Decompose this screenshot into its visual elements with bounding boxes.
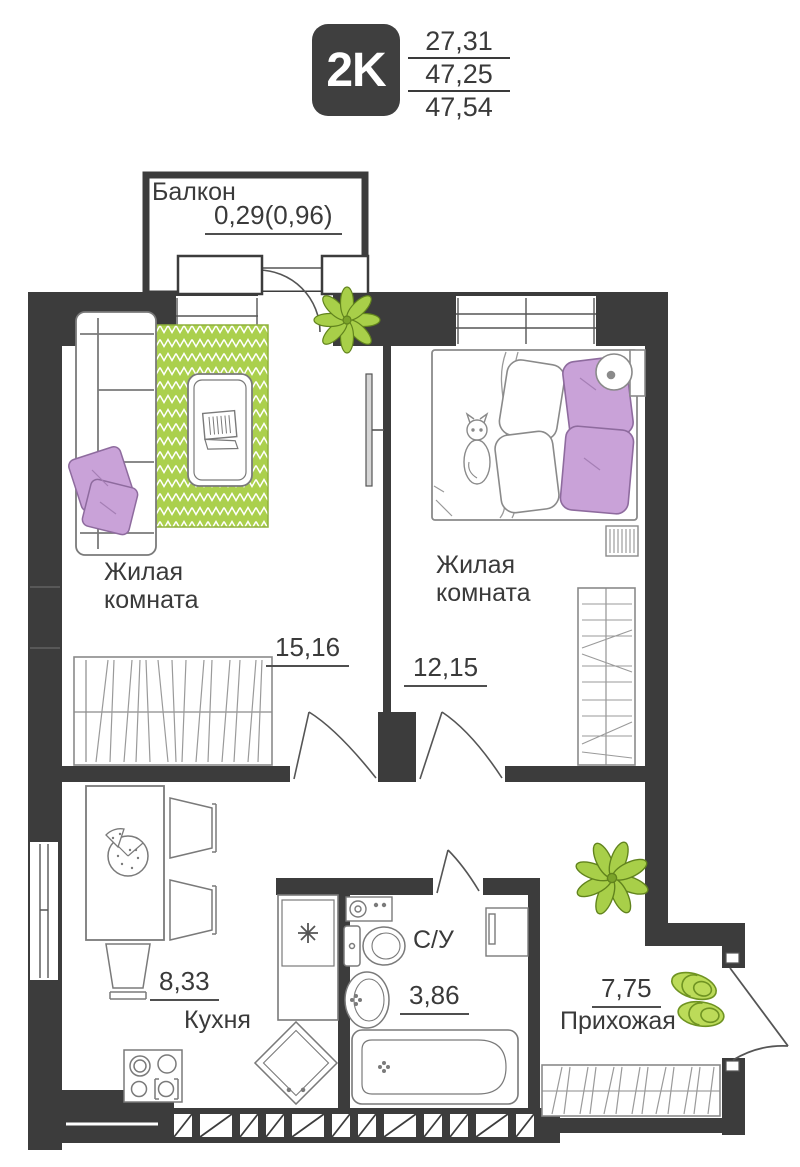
window-bedroom bbox=[456, 296, 596, 346]
bathroom-sink bbox=[345, 972, 389, 1028]
header-area-total: 47,54 bbox=[408, 90, 510, 123]
hallway-area: 7,75 bbox=[592, 973, 661, 1008]
closet-living bbox=[74, 657, 272, 765]
floor-plan-page: 2K 27,31 47,25 47,54 Балкон 0,29(0,96) Ж… bbox=[0, 0, 800, 1167]
bathroom-label: С/У bbox=[413, 926, 454, 955]
window-kitchen bbox=[30, 842, 58, 980]
apartment-type-badge: 2K bbox=[312, 24, 400, 116]
kitchen-label: Кухня bbox=[184, 1006, 251, 1035]
door-living-room bbox=[294, 712, 376, 779]
wardrobe-bedroom bbox=[578, 588, 635, 765]
living-room-1-area: 15,16 bbox=[266, 632, 349, 667]
plant-living-icon bbox=[314, 287, 380, 353]
dishwasher-diamond bbox=[255, 1022, 337, 1104]
stove bbox=[124, 1050, 182, 1102]
hallway-label: Прихожая bbox=[560, 1007, 676, 1036]
header-area-usable: 47,25 bbox=[408, 57, 510, 90]
door-bathroom bbox=[437, 850, 479, 893]
washing-machine bbox=[346, 897, 392, 921]
kitchen-area: 8,33 bbox=[150, 966, 219, 1001]
tv bbox=[366, 374, 384, 486]
coffee-table bbox=[188, 374, 252, 486]
closet-hall bbox=[542, 1065, 720, 1116]
toilet bbox=[344, 926, 405, 966]
header-area-living: 27,31 bbox=[408, 26, 510, 57]
living-room-2-area: 12,15 bbox=[404, 652, 487, 687]
sink-unit bbox=[278, 895, 338, 1020]
bathroom-cabinet bbox=[486, 908, 528, 956]
bathroom-area: 3,86 bbox=[400, 980, 469, 1015]
apartment-type-label: 2K bbox=[326, 43, 385, 98]
header-areas: 27,31 47,25 47,54 bbox=[408, 26, 510, 123]
balcony-area: 0,29(0,96) bbox=[205, 200, 342, 235]
living-room-1-label: Жилая комната bbox=[104, 558, 232, 614]
radiator-bedroom bbox=[606, 526, 638, 556]
living-room-2-label: Жилая комната bbox=[436, 551, 564, 607]
slippers-icon bbox=[668, 967, 725, 1029]
cat-icon bbox=[464, 414, 490, 484]
entrance-door-arc bbox=[726, 953, 788, 1071]
door-bedroom bbox=[420, 712, 502, 779]
bathtub bbox=[352, 1030, 518, 1104]
